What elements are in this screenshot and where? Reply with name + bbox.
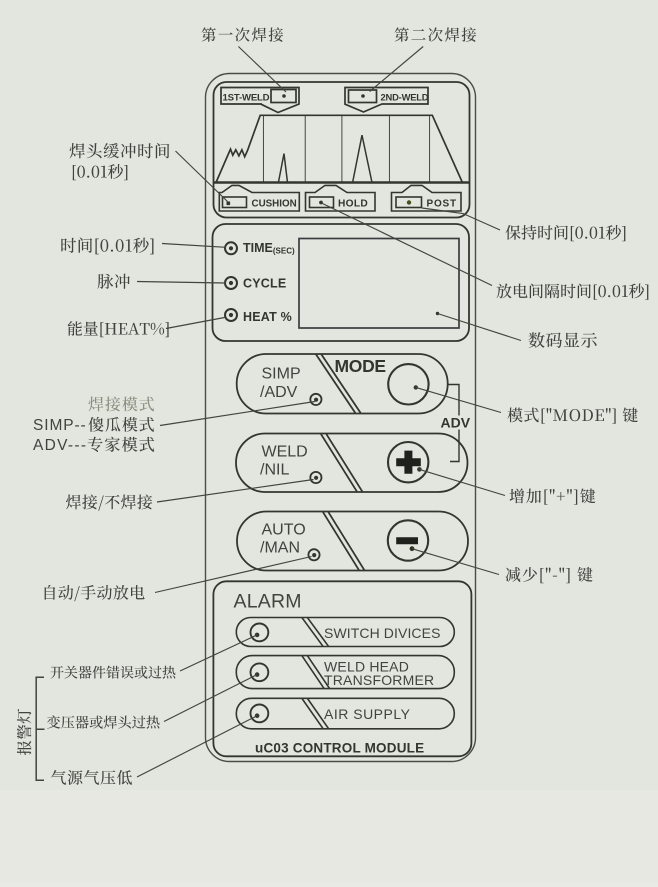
svg-text:AIR SUPPLY: AIR SUPPLY bbox=[324, 706, 411, 722]
svg-text:ADV---: ADV--- bbox=[33, 437, 87, 454]
svg-text:CUSHION: CUSHION bbox=[252, 199, 297, 210]
svg-text:CYCLE: CYCLE bbox=[243, 277, 286, 291]
svg-text:WELD: WELD bbox=[262, 444, 308, 461]
svg-text:AUTO: AUTO bbox=[262, 522, 306, 539]
svg-text:HOLD: HOLD bbox=[338, 199, 368, 210]
svg-text:SIMP--: SIMP-- bbox=[33, 417, 87, 434]
svg-text:uC03 CONTROL MODULE: uC03 CONTROL MODULE bbox=[255, 741, 424, 756]
svg-text:1ST-WELD: 1ST-WELD bbox=[223, 93, 270, 104]
svg-text:TRANSFORMER: TRANSFORMER bbox=[324, 672, 434, 688]
svg-text:2ND-WELD: 2ND-WELD bbox=[381, 92, 429, 103]
svg-text:/NIL: /NIL bbox=[260, 462, 289, 479]
svg-text:SWITCH DIVICES: SWITCH DIVICES bbox=[324, 625, 441, 641]
svg-text:ALARM: ALARM bbox=[234, 591, 302, 613]
svg-text:/MAN: /MAN bbox=[260, 540, 300, 557]
svg-text:MODE: MODE bbox=[335, 356, 386, 376]
svg-text:HEAT %: HEAT % bbox=[243, 310, 292, 324]
svg-text:/ADV: /ADV bbox=[260, 384, 298, 401]
svg-text:SIMP: SIMP bbox=[262, 366, 301, 383]
svg-text:POST: POST bbox=[427, 199, 457, 210]
svg-text:ADV: ADV bbox=[441, 414, 471, 430]
